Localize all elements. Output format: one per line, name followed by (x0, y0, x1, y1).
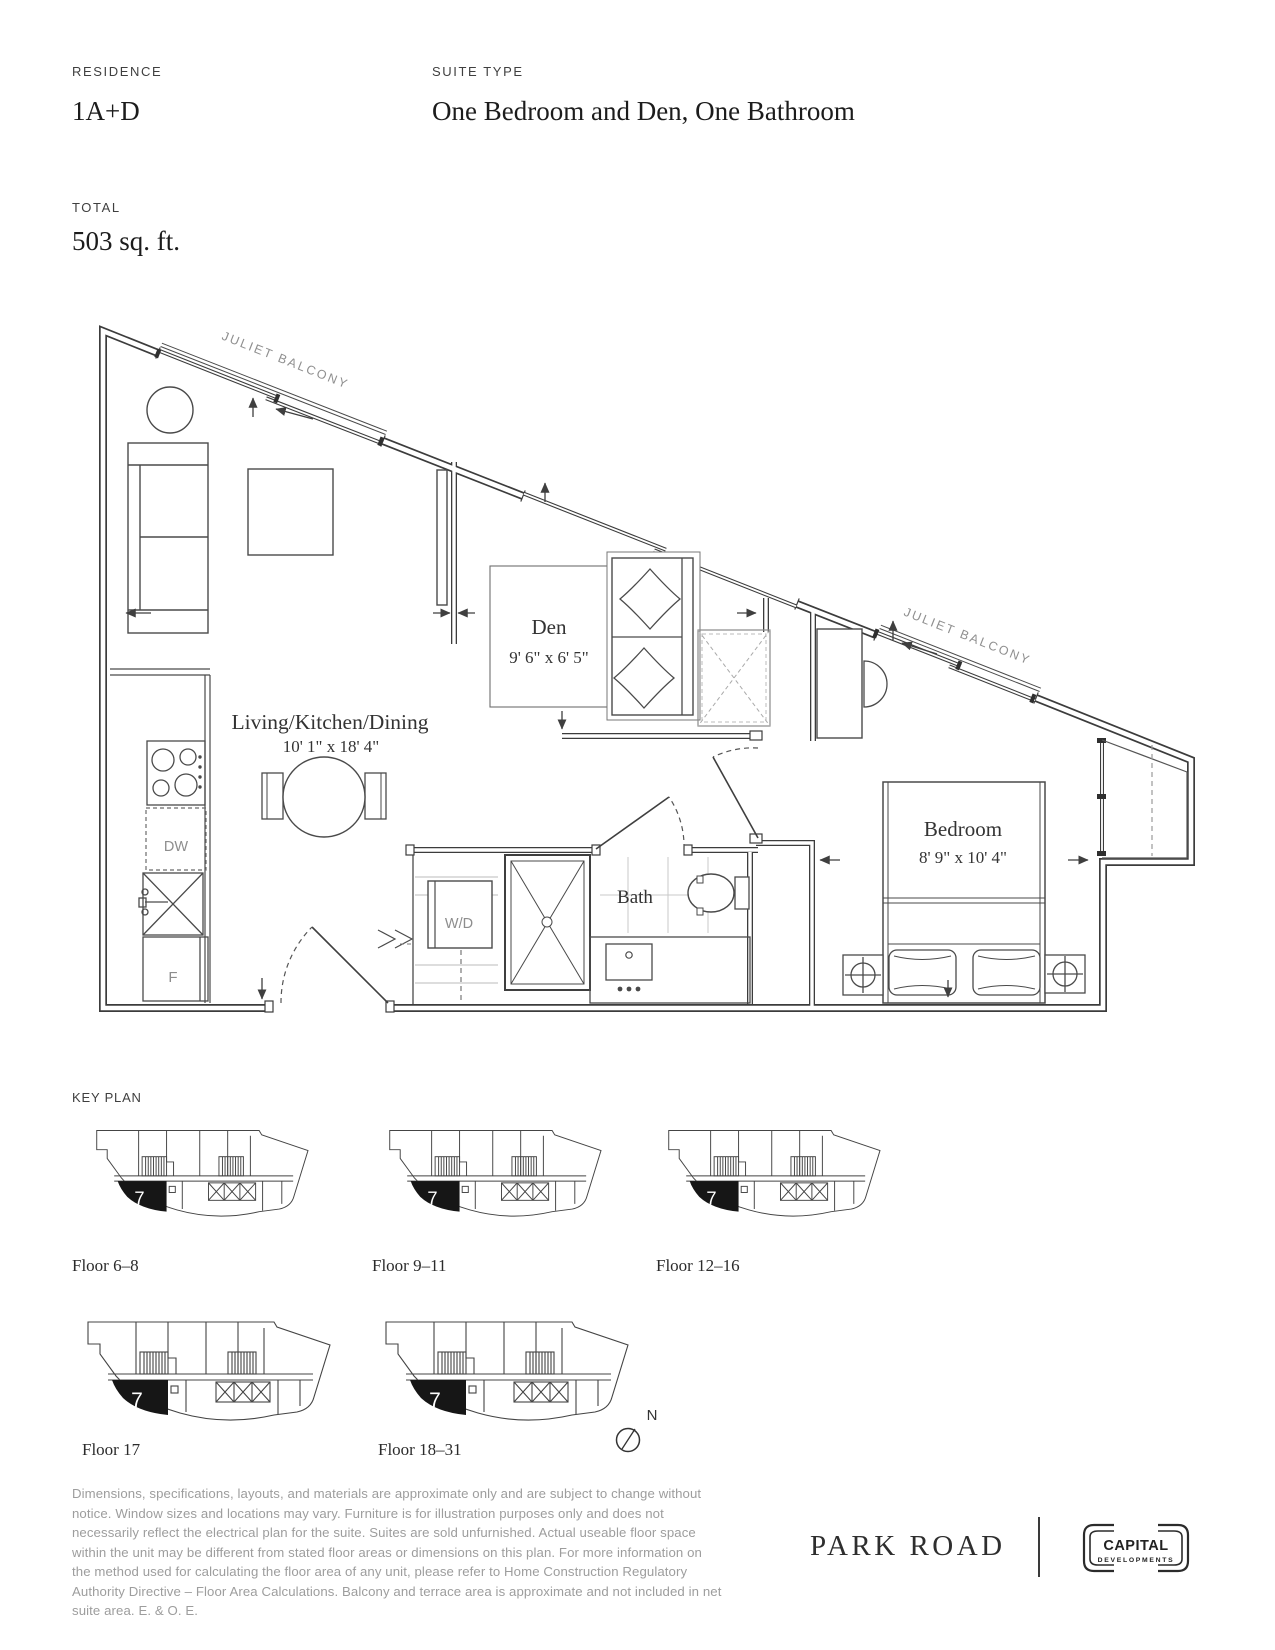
living-room-dims: 10' 1" x 18' 4" (283, 737, 380, 756)
key-plan-floor-9-11 (390, 1130, 601, 1216)
vanity-sink (590, 937, 750, 1003)
fridge-label: F (168, 969, 177, 986)
suite-type-label: SUITE TYPE (432, 64, 524, 79)
kitchen-counter (110, 669, 210, 1003)
disclaimer-text: Dimensions, specifications, layouts, and… (72, 1484, 724, 1621)
dishwasher-label: DW (164, 839, 188, 855)
den-dims: 9' 6" x 6' 5" (509, 648, 589, 667)
nightstand-left (843, 955, 883, 995)
toilet (688, 874, 749, 915)
coffee-table (248, 469, 333, 555)
bedroom-east-niche (1102, 740, 1187, 858)
developer-name: CAPITAL (1103, 1538, 1168, 1554)
wardrobe-closet (698, 630, 770, 726)
juliet-balcony-label-2: JULIET BALCONY (902, 605, 1033, 668)
dining-table (283, 757, 365, 837)
dining-set (262, 757, 386, 837)
developer-sub: DEVELOPMENTS (1098, 1557, 1175, 1564)
floor-label-18-31: Floor 18–31 (378, 1440, 462, 1460)
washer-dryer-unit (428, 881, 492, 948)
floor-label-12-16: Floor 12–16 (656, 1256, 740, 1276)
north-arrow (617, 1429, 640, 1452)
nightstand-right (1045, 955, 1085, 993)
sofa (128, 443, 208, 633)
den-label: Den (532, 615, 567, 639)
bed (883, 782, 1045, 1003)
den-sofa-bed (607, 552, 700, 720)
north-label: N (647, 1407, 658, 1424)
dining-chair-right (365, 773, 386, 819)
page: RESIDENCE 1A+D SUITE TYPE One Bedroom an… (0, 0, 1275, 1650)
cooktop (147, 741, 205, 805)
capital-developments-logo: CAPITAL DEVELOPMENTS (1080, 1522, 1192, 1574)
total-value: 503 sq. ft. (72, 226, 180, 257)
washer-dryer-label: W/D (445, 916, 473, 932)
desk-chair (864, 661, 887, 707)
total-label: TOTAL (72, 200, 121, 215)
floor-label-6-8: Floor 6–8 (72, 1256, 139, 1276)
desk (817, 629, 862, 738)
key-plan-section: 7 N (0, 1060, 1275, 1470)
logo-divider (1038, 1517, 1040, 1577)
kitchen-sink (139, 873, 203, 935)
closet-bifold-doors (378, 930, 412, 948)
residence-label: RESIDENCE (72, 64, 162, 79)
residence-value: 1A+D (72, 96, 140, 127)
shower (505, 855, 590, 990)
tv (437, 470, 447, 605)
bedroom-door (713, 748, 758, 838)
side-table (147, 387, 193, 433)
floor-plan: JULIET BALCONY JULIET BALCONY Living/Kit… (85, 300, 1205, 1020)
shower-drain (542, 917, 552, 927)
living-room-label: Living/Kitchen/Dining (231, 710, 428, 734)
park-road-logo: PARK ROAD (810, 1530, 1006, 1563)
key-plan-floor-18-31 (386, 1322, 628, 1420)
bedroom-label: Bedroom (924, 817, 1002, 841)
key-plan-floor-17 (88, 1322, 330, 1420)
key-plan-floor-12-16 (669, 1130, 880, 1216)
laundry-closet (378, 852, 498, 1004)
dining-chair-left (262, 773, 283, 819)
floor-label-17: Floor 17 (82, 1440, 140, 1460)
bathroom-door (596, 797, 684, 849)
entry-door (281, 927, 388, 1003)
suite-type-value: One Bedroom and Den, One Bathroom (432, 96, 855, 127)
bath-label: Bath (617, 887, 653, 908)
bedroom-dims: 8' 9" x 10' 4" (919, 848, 1007, 867)
key-plan-floor-6-8 (97, 1130, 308, 1216)
floor-label-9-11: Floor 9–11 (372, 1256, 446, 1276)
